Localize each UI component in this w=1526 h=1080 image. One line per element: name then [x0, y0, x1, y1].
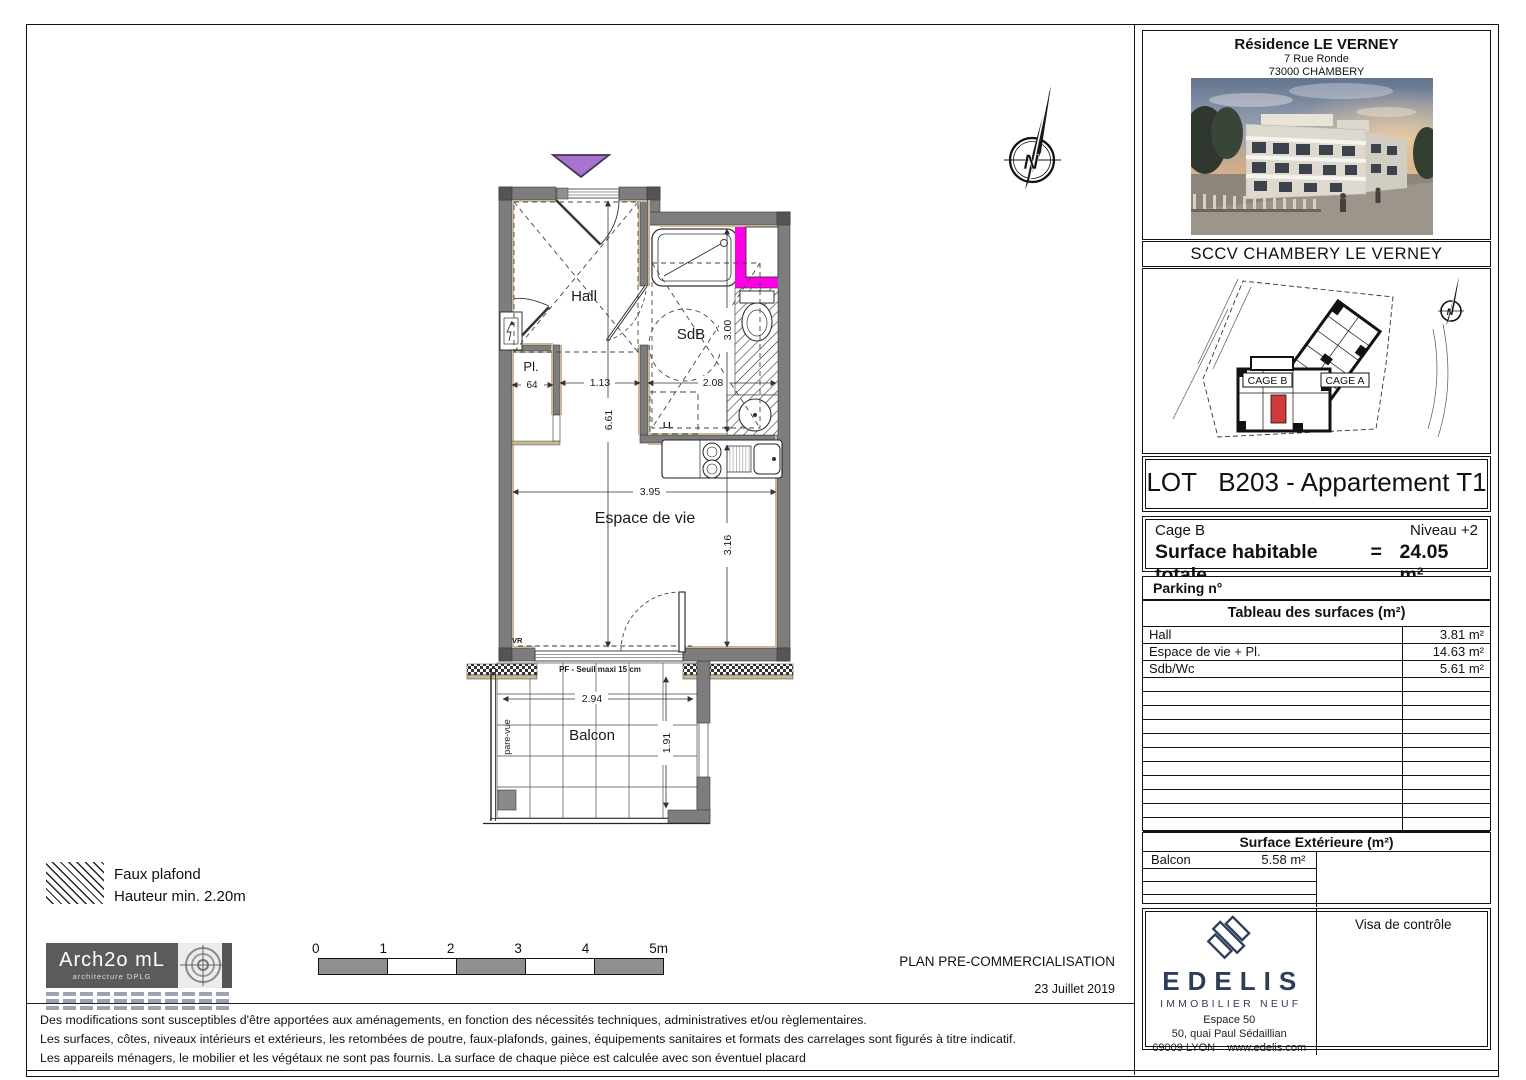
parking-box: Parking n°: [1142, 576, 1491, 600]
architect-address-line: [46, 1006, 232, 1010]
site-plan: CAGE B CAGE A N: [1143, 269, 1489, 452]
svg-text:CAGE A: CAGE A: [1325, 375, 1364, 387]
site-cage-a-tag: CAGE A: [1321, 373, 1369, 387]
company-name: SCCV CHAMBERY LE VERNEY: [1143, 242, 1490, 267]
scale-bar: [318, 958, 664, 975]
architect-logo: Arch2o mL architecture DPLG: [46, 943, 178, 988]
edelis-cell: EDELIS IMMOBILIER NEUF Espace 50 50, qua…: [1143, 909, 1317, 1055]
exterior-table: Surface Extérieure (m²) Balcon 5.58 m²: [1142, 832, 1491, 904]
site-building-cage-b: [1238, 357, 1330, 431]
scale-labels: 0 1 2 3 4 5m: [312, 941, 668, 956]
cage-label: Cage B: [1155, 522, 1205, 539]
table-row-empty: [1143, 804, 1490, 818]
site-highlighted-unit: [1271, 395, 1286, 423]
plan-date: 23 Juillet 2019: [830, 982, 1115, 996]
site-compass-icon: N: [1438, 277, 1464, 326]
architect-address-line: [46, 999, 232, 1003]
edelis-address-2: 50, quai Paul Sédaillian: [1143, 1027, 1316, 1041]
publisher-box: EDELIS IMMOBILIER NEUF Espace 50 50, qua…: [1142, 908, 1491, 1050]
table-row-empty: [1143, 790, 1490, 804]
faux-plafond-swatch-icon: [46, 862, 104, 904]
table-row: Sdb/Wc 5.61 m²: [1143, 661, 1490, 678]
building-photo: [1191, 78, 1433, 235]
site-cage-b-tag: CAGE B: [1243, 373, 1292, 387]
architect-name: Arch2o mL: [46, 943, 178, 972]
svg-text:N: N: [1447, 307, 1455, 318]
plan-type: PLAN PRE-COMMERCIALISATION: [830, 954, 1115, 969]
site-plan-box: CAGE B CAGE A N: [1142, 268, 1491, 454]
table-row: Espace de vie + Pl. 14.63 m²: [1143, 644, 1490, 661]
architect-subtitle: architecture DPLG: [46, 972, 178, 981]
visa-label: Visa de contrôle: [1317, 909, 1491, 932]
table-row: Balcon 5.58 m²: [1143, 852, 1316, 869]
surfaces-table: Tableau des surfaces (m²) Hall 3.81 m² E…: [1142, 600, 1491, 831]
architect-address-line: [46, 992, 232, 996]
edelis-address-3: 69009 LYON www.edelis.com: [1143, 1041, 1316, 1055]
legend-line-1: Faux plafond: [114, 866, 201, 883]
edelis-tagline: IMMOBILIER NEUF: [1143, 998, 1316, 1010]
surface-box: Cage B Niveau +2 Surface habitable total…: [1142, 516, 1491, 572]
note-line-3: Les appareils ménagers, le mobilier et l…: [40, 1051, 1126, 1065]
table-row-empty: [1143, 720, 1490, 734]
edelis-website: www.edelis.com: [1227, 1042, 1306, 1054]
table-row-empty: [1143, 762, 1490, 776]
edelis-logo-icon: [1194, 913, 1264, 961]
residence-name: Résidence LE VERNEY: [1143, 36, 1490, 53]
exterior-table-header: Surface Extérieure (m²): [1143, 833, 1490, 852]
table-row-empty: [1143, 706, 1490, 720]
panel-divider: [1134, 24, 1135, 1075]
note-line-1: Des modifications sont susceptibles d'êt…: [40, 1013, 1126, 1027]
visa-cell: Visa de contrôle: [1317, 909, 1491, 1055]
residence-address-1: 7 Rue Ronde: [1143, 53, 1490, 66]
bottom-double-line: [26, 1070, 1499, 1071]
notes-separator: [26, 1003, 1134, 1004]
parking-label: Parking n°: [1143, 577, 1490, 600]
svg-text:CAGE B: CAGE B: [1248, 375, 1288, 387]
edelis-address-1: Espace 50: [1143, 1013, 1316, 1027]
surfaces-table-header: Tableau des surfaces (m²): [1143, 601, 1490, 627]
company-box: SCCV CHAMBERY LE VERNEY: [1142, 241, 1491, 267]
lot-title: LOT B203 - Appartement T1: [1143, 457, 1490, 507]
table-row-empty: [1143, 818, 1490, 832]
table-row-empty: [1143, 869, 1316, 882]
edelis-name: EDELIS: [1143, 966, 1316, 997]
table-row-empty: [1143, 748, 1490, 762]
table-row-empty: [1143, 678, 1490, 692]
legend-line-2: Hauteur min. 2.20m: [114, 888, 246, 905]
table-row-empty: [1143, 882, 1316, 895]
table-row-empty: [1143, 692, 1490, 706]
table-row: Hall 3.81 m²: [1143, 627, 1490, 644]
table-row-empty: [1143, 734, 1490, 748]
surface-equals: =: [1371, 541, 1382, 564]
level-label: Niveau +2: [1410, 522, 1478, 539]
lot-title-box: LOT B203 - Appartement T1: [1142, 456, 1491, 512]
table-row-empty: [1143, 776, 1490, 790]
residence-header-box: Résidence LE VERNEY 7 Rue Ronde 73000 CH…: [1142, 30, 1491, 240]
architect-mark-icon: [178, 943, 232, 988]
table-row-empty: [1143, 895, 1316, 907]
note-line-2: Les surfaces, côtes, niveaux intérieurs …: [40, 1032, 1126, 1046]
